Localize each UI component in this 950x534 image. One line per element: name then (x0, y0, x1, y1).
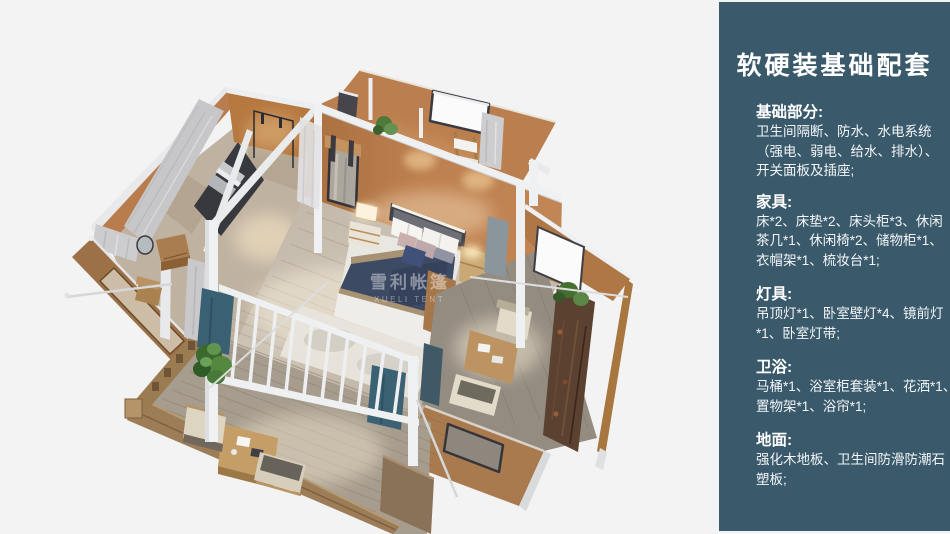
svg-text:XUELI TENT: XUELI TENT (374, 295, 445, 304)
svg-text:雪利帐篷: 雪利帐篷 (370, 272, 450, 292)
